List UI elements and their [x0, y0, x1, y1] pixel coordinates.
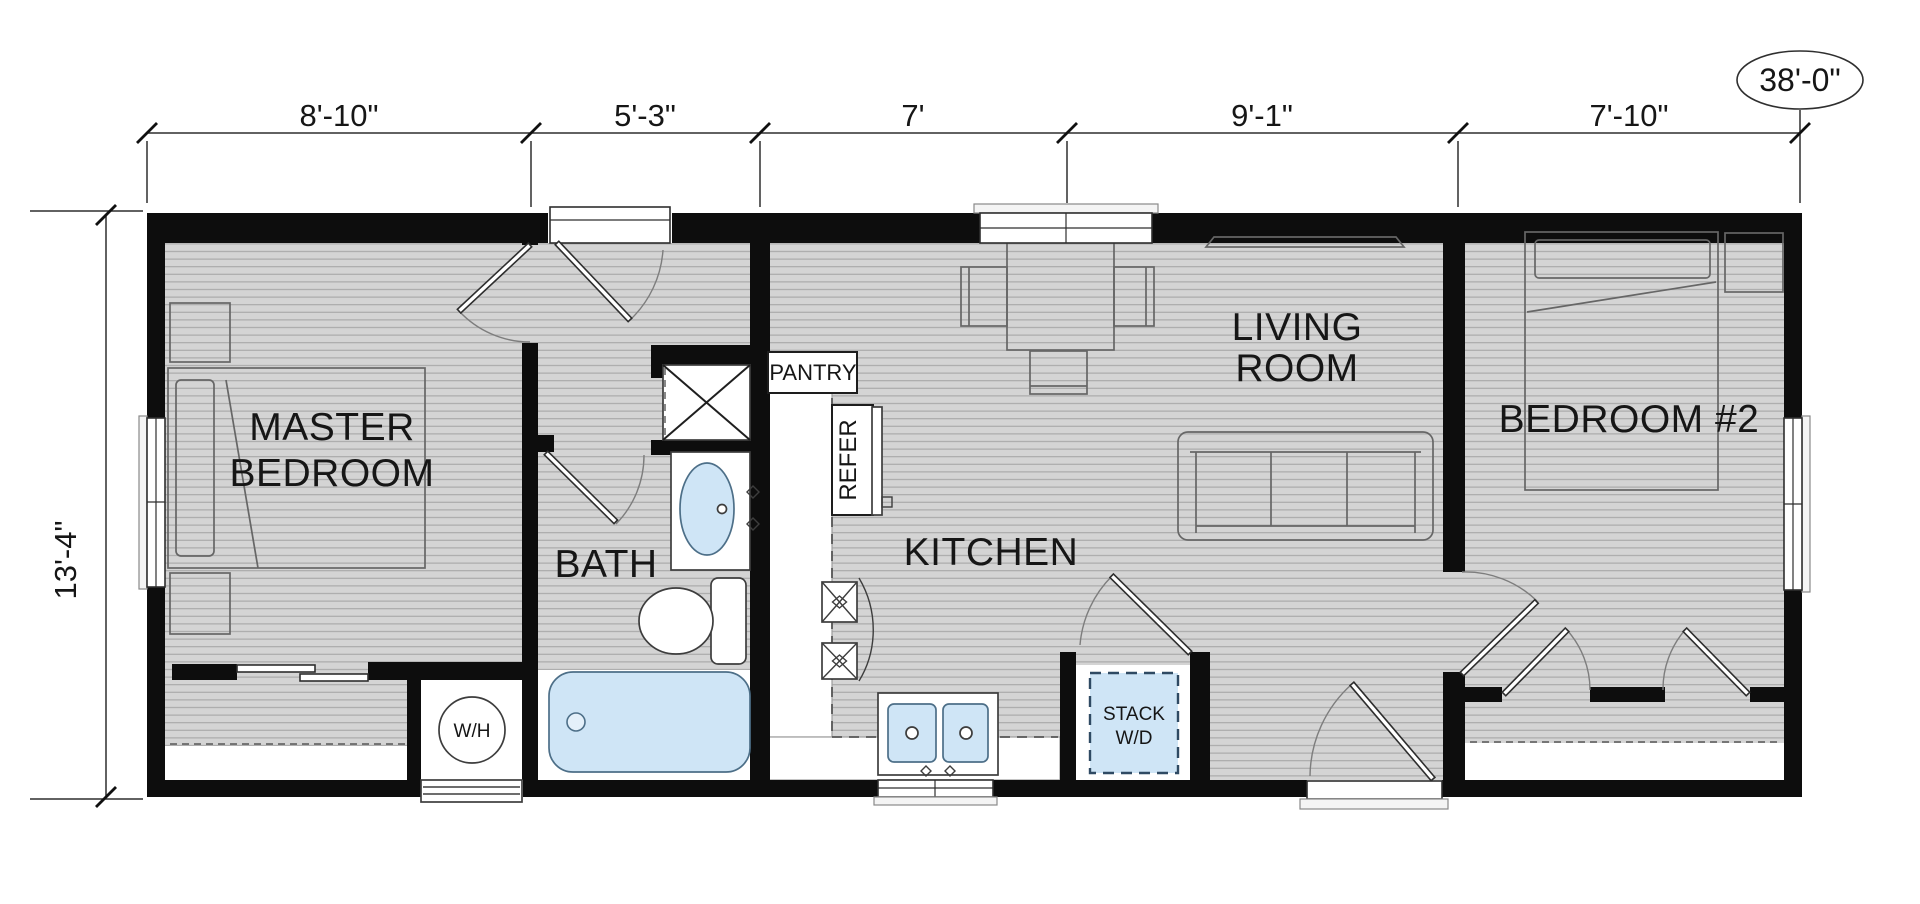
- living-room-label-line1: LIVING: [1232, 306, 1363, 349]
- total-width-label: 38'-0": [1759, 62, 1841, 98]
- water-heater-label: W/H: [454, 721, 491, 742]
- toilet-tank: [711, 578, 746, 664]
- window-top-kitchen: [974, 204, 1158, 243]
- kitchen-sink: [878, 693, 998, 776]
- dim-label-1: 8'-10": [300, 98, 379, 133]
- master-bedroom-label-line1: MASTER: [249, 406, 415, 449]
- bedroom2-label: BEDROOM #2: [1499, 398, 1760, 441]
- toilet-bowl: [639, 588, 713, 654]
- dim-label-2: 5'-3": [614, 98, 676, 133]
- master-bedroom-label-line2: BEDROOM: [229, 452, 434, 495]
- window-master-left: [139, 416, 165, 589]
- floor-plan-page: 8'-10" 5'-3" 7' 9'-1" 7'-10" 38'-0" 13'-…: [0, 0, 1920, 904]
- kitchen-counter-west: [768, 393, 832, 737]
- master-closet-slider-1: [237, 665, 315, 672]
- window-kitchen-sink: [874, 780, 997, 805]
- dim-label-5: 7'-10": [1590, 98, 1669, 133]
- floor-plan-drawing: 8'-10" 5'-3" 7' 9'-1" 7'-10" 38'-0" 13'-…: [0, 0, 1920, 904]
- master-closet-slider-2: [300, 674, 368, 681]
- living-room-label-line2: ROOM: [1235, 347, 1358, 390]
- height-dimension: 13'-4": [30, 205, 143, 807]
- water-heater-louver-door: [421, 780, 522, 802]
- kitchen-label: KITCHEN: [904, 531, 1079, 574]
- dim-label-4: 9'-1": [1231, 98, 1293, 133]
- window-bedroom2-right: [1784, 416, 1810, 592]
- total-width-bubble: 38'-0": [1737, 51, 1863, 109]
- master-closet-floor: [165, 746, 407, 780]
- bath-label: BATH: [554, 543, 657, 586]
- washer-dryer-label-line1: STACK: [1103, 704, 1165, 725]
- height-label: 13'-4": [48, 521, 83, 600]
- bedroom2-closet-floor: [1465, 743, 1784, 782]
- pantry-label: PANTRY: [769, 360, 857, 385]
- washer-dryer-label-line2: W/D: [1116, 728, 1153, 749]
- bathtub-drain: [567, 713, 585, 731]
- refrigerator-label: REFER: [835, 419, 862, 500]
- dim-label-3: 7': [901, 98, 924, 133]
